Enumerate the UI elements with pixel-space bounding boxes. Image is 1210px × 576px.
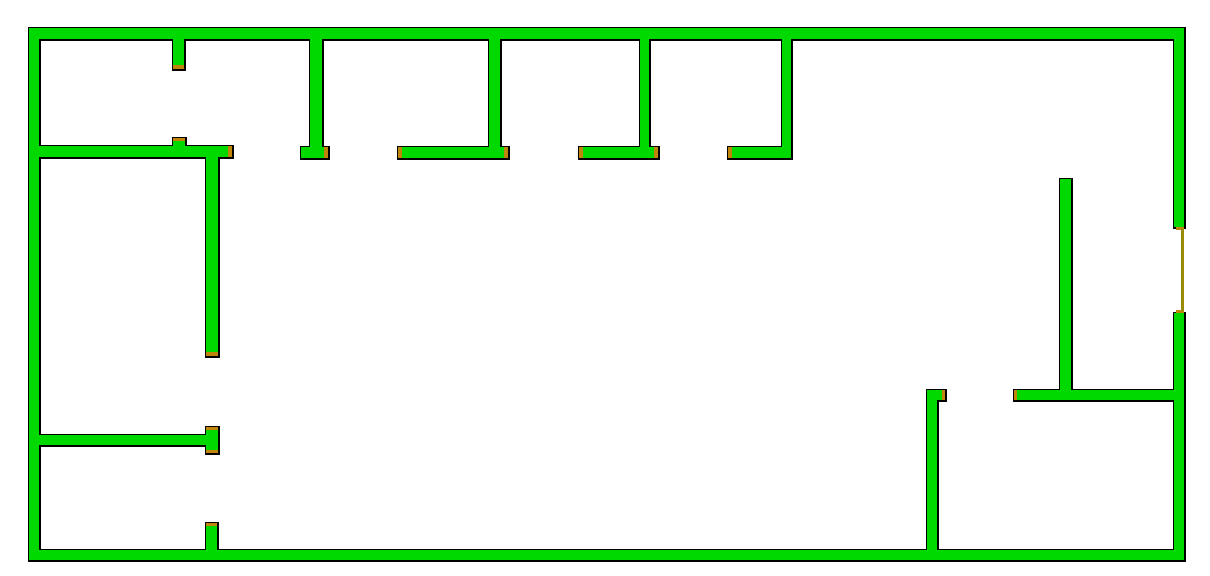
door-cap-bottomleft-top — [206, 523, 217, 526]
door-cap-br-horizontal-west — [1014, 390, 1017, 400]
wall-midleft-vertical — [206, 157, 218, 356]
door-cap-foot3-east — [654, 147, 658, 158]
wall-bottom — [29, 550, 1184, 560]
door-cap-foot3-west — [579, 147, 583, 158]
door-line-right-wall — [1181, 229, 1184, 311]
wall-lowerleft — [38, 435, 206, 445]
wall-left — [29, 28, 39, 560]
wall-top — [29, 28, 1184, 39]
door-cap-foot2-west — [398, 147, 402, 158]
door-cap-foot1-east — [324, 147, 328, 158]
partition-1 — [310, 39, 322, 148]
door-cap-bump-room1-top — [173, 138, 185, 141]
wall-br-vertical-c — [927, 390, 937, 550]
door-cap-crossbar-top — [206, 427, 218, 430]
partition-3 — [640, 39, 649, 148]
foot-3 — [579, 147, 658, 158]
wall-room1-south — [38, 146, 232, 157]
door-cap-stub-room1-bottom — [173, 65, 184, 69]
foot-2 — [398, 147, 508, 158]
partition-2 — [489, 39, 500, 148]
door-cap-foot4-west — [728, 147, 732, 158]
door-cap-room1-east — [228, 146, 232, 157]
wall-br-horizontal — [1014, 390, 1184, 400]
partition-4 — [782, 39, 791, 148]
door-cap-midleft-bottom — [206, 352, 218, 356]
floor-plan-canvas — [0, 0, 1210, 576]
door-cap-crossbar-bottom — [206, 450, 218, 453]
door-cap-foot2-east — [504, 147, 508, 158]
door-cap-br-stub-east — [942, 390, 945, 400]
wall-right-upper — [1174, 28, 1184, 227]
foot-4 — [728, 147, 791, 158]
wall-right-lower — [1174, 313, 1184, 560]
wall-br-vertical-a — [1060, 179, 1071, 390]
wall-bottomleft-stub — [206, 523, 217, 550]
